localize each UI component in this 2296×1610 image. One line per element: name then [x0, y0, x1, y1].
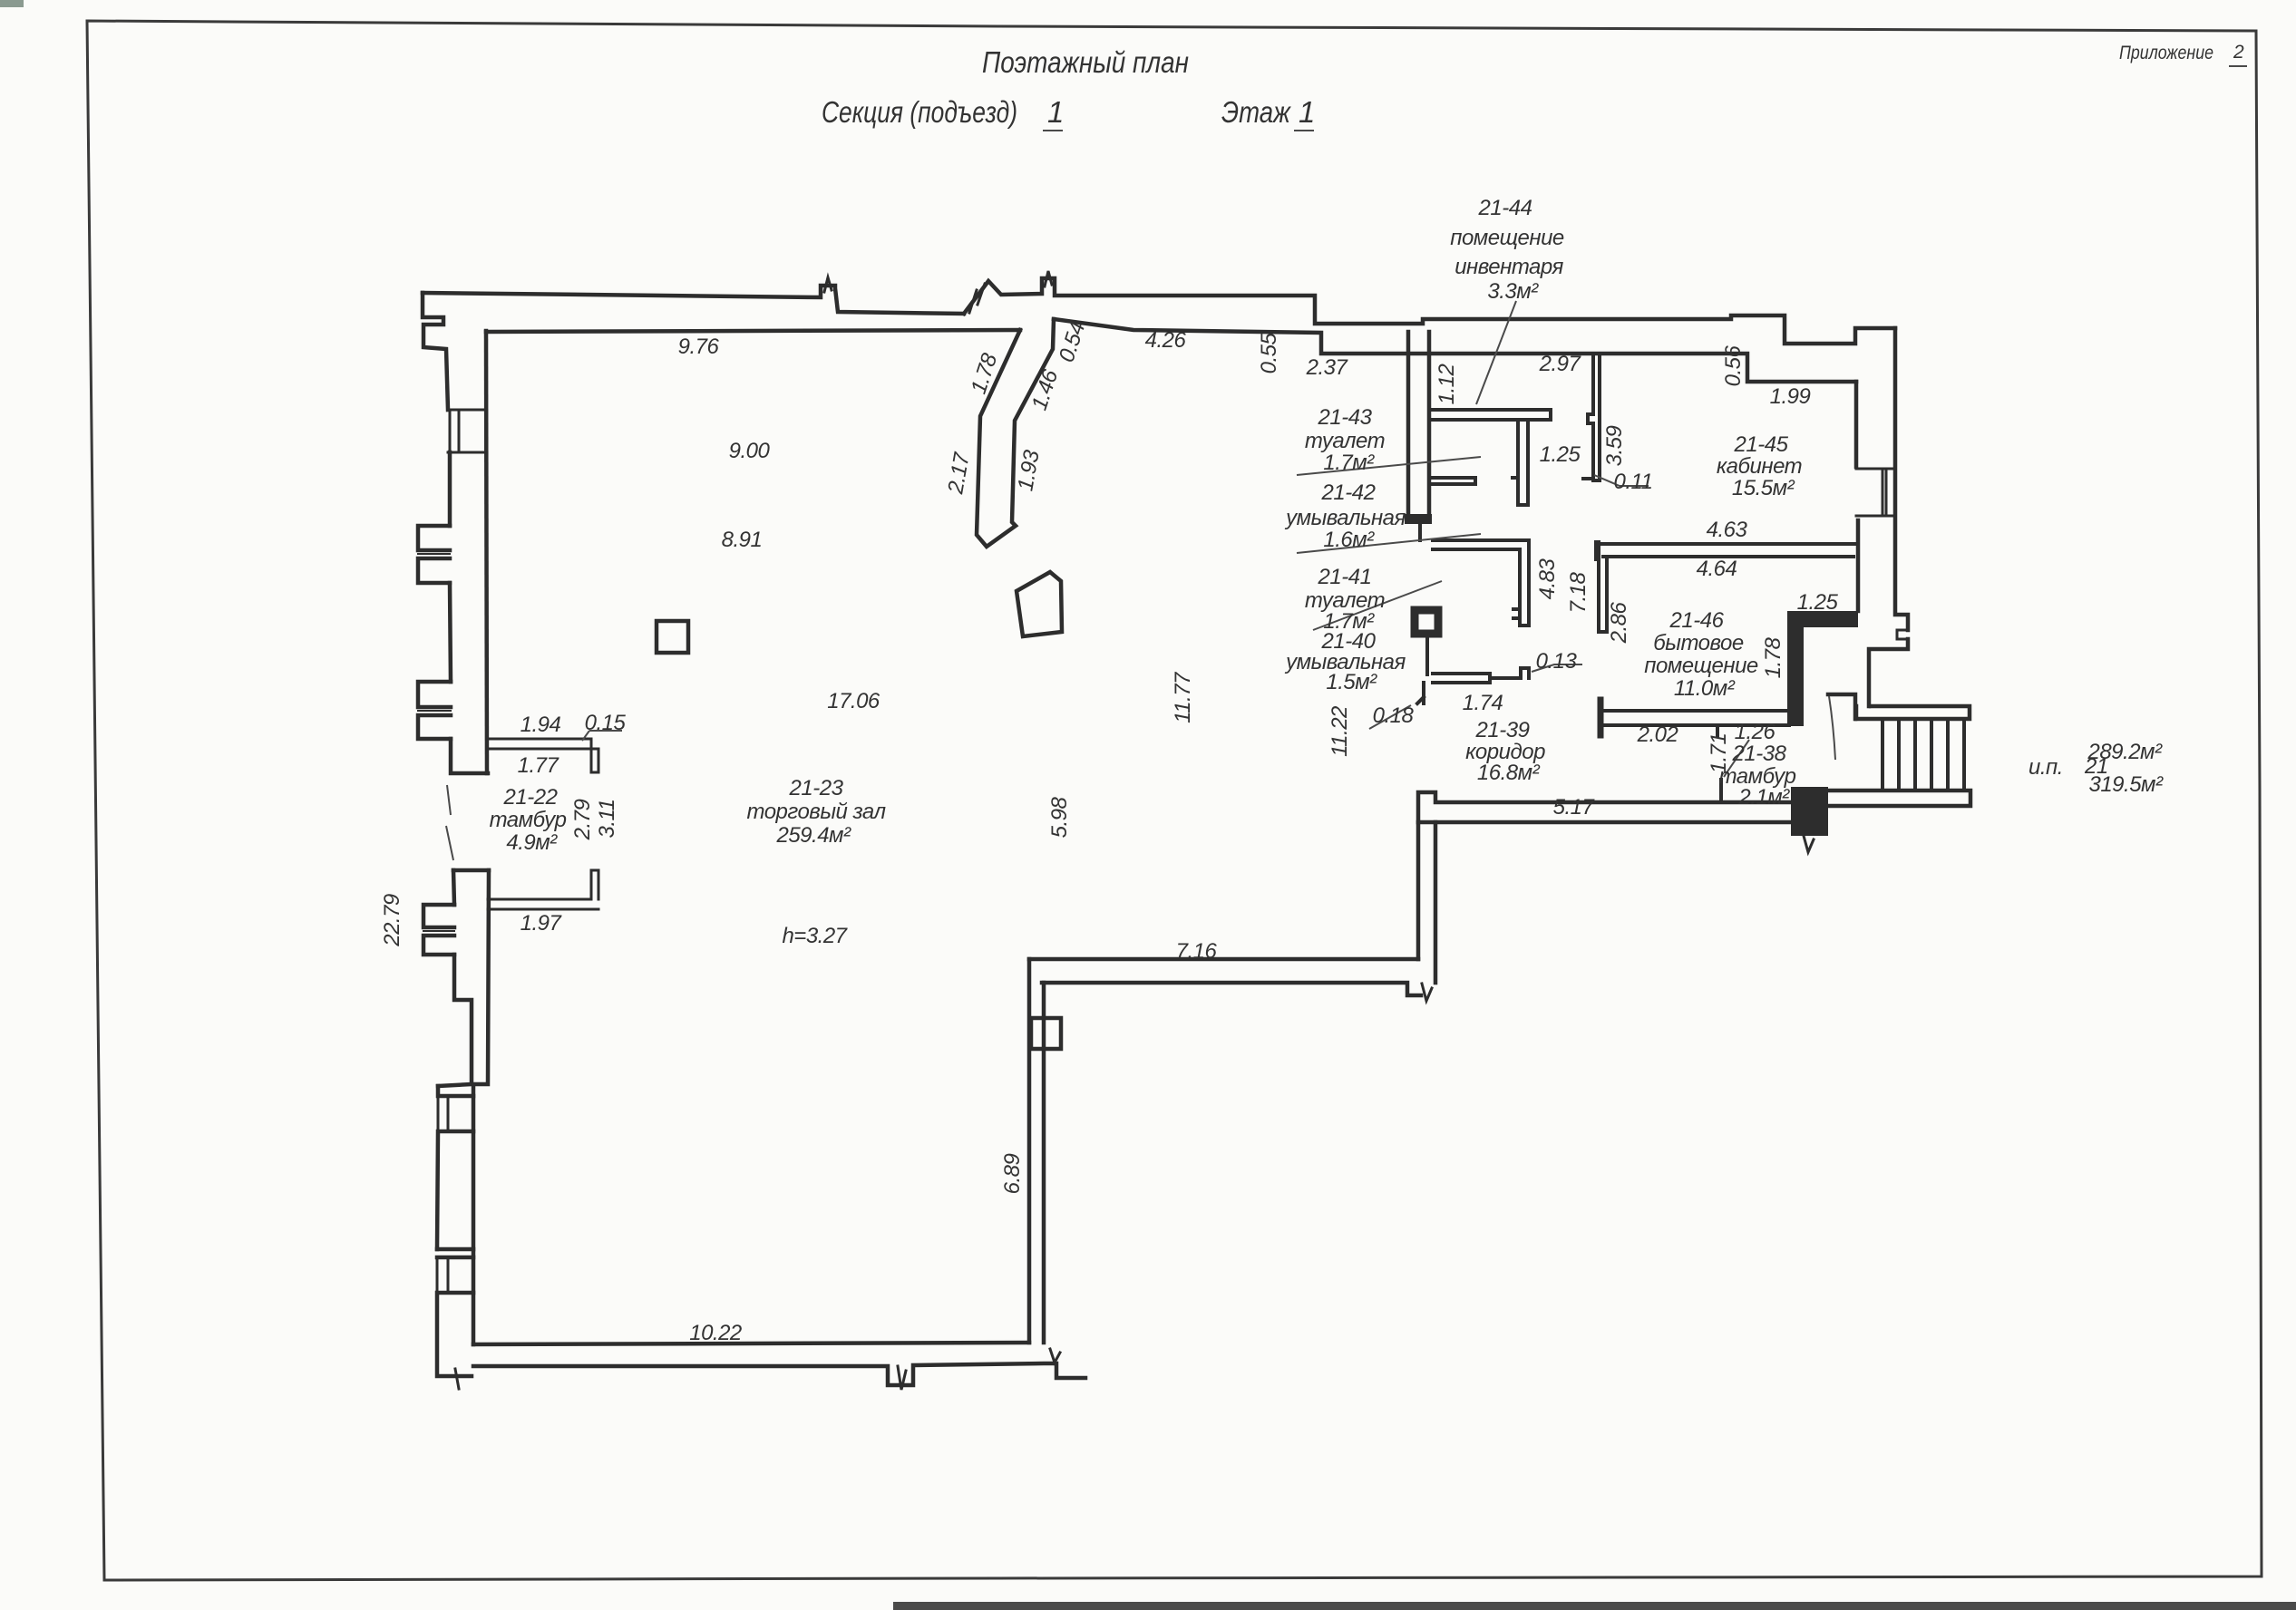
svg-text:4.9м²: 4.9м² [506, 830, 558, 855]
svg-text:1.94: 1.94 [520, 713, 561, 737]
svg-text:21-23: 21-23 [789, 776, 844, 800]
svg-text:1.74: 1.74 [1463, 691, 1503, 715]
svg-text:2.37: 2.37 [1306, 355, 1349, 380]
svg-text:10.22: 10.22 [689, 1321, 742, 1345]
svg-text:5.17: 5.17 [1553, 795, 1596, 820]
svg-text:7.16: 7.16 [1176, 939, 1218, 964]
svg-text:11.22: 11.22 [1328, 706, 1352, 757]
svg-text:3.3м²: 3.3м² [1487, 279, 1539, 304]
svg-text:h=3.27: h=3.27 [782, 924, 848, 948]
svg-text:1: 1 [1299, 95, 1315, 129]
svg-text:0.55: 0.55 [1257, 332, 1281, 373]
svg-text:помещение: помещение [1644, 654, 1758, 678]
svg-text:21-46: 21-46 [1669, 608, 1725, 633]
svg-text:и.п.: и.п. [2028, 755, 2063, 780]
svg-text:21-43: 21-43 [1318, 405, 1373, 430]
svg-text:2.86: 2.86 [1607, 601, 1631, 644]
svg-text:1.78: 1.78 [1761, 636, 1785, 678]
svg-text:тамбур: тамбур [490, 808, 567, 832]
svg-text:15.5м²: 15.5м² [1732, 476, 1795, 500]
svg-text:8.91: 8.91 [722, 528, 763, 552]
svg-text:0.11: 0.11 [1614, 470, 1653, 494]
svg-text:22.79: 22.79 [380, 894, 404, 947]
svg-text:3.11: 3.11 [595, 800, 619, 839]
svg-text:21-44: 21-44 [1478, 196, 1532, 220]
svg-text:Поэтажный план: Поэтажный план [982, 45, 1189, 79]
svg-text:289.2м²: 289.2м² [2087, 740, 2163, 764]
svg-text:9.76: 9.76 [678, 335, 720, 359]
svg-text:1.99: 1.99 [1770, 384, 1811, 409]
svg-text:21-41: 21-41 [1318, 565, 1372, 589]
svg-text:1.97: 1.97 [520, 911, 563, 936]
svg-text:туалет: туалет [1305, 429, 1385, 453]
svg-text:умывальная: умывальная [1284, 506, 1406, 530]
svg-text:5.98: 5.98 [1047, 796, 1072, 838]
svg-text:259.4м²: 259.4м² [775, 823, 851, 848]
svg-text:0.13: 0.13 [1536, 649, 1578, 674]
svg-text:4.63: 4.63 [1707, 518, 1748, 542]
svg-text:1.26: 1.26 [1735, 720, 1776, 744]
svg-text:1: 1 [1047, 95, 1064, 129]
svg-text:17.06: 17.06 [827, 689, 880, 713]
svg-text:16.8м²: 16.8м² [1477, 761, 1541, 785]
svg-text:0.15: 0.15 [585, 711, 627, 735]
svg-text:1.7м²: 1.7м² [1323, 451, 1375, 475]
svg-text:бытовое: бытовое [1653, 631, 1744, 655]
svg-text:21-22: 21-22 [503, 785, 558, 810]
svg-text:7.18: 7.18 [1566, 571, 1591, 613]
svg-text:9.00: 9.00 [729, 439, 771, 463]
svg-text:21-38: 21-38 [1732, 742, 1787, 766]
svg-text:2.1м²: 2.1м² [1737, 785, 1790, 810]
svg-text:1.77: 1.77 [518, 753, 560, 778]
svg-text:11.77: 11.77 [1171, 671, 1195, 723]
svg-text:инвентаря: инвентаря [1454, 255, 1563, 279]
svg-text:11.0м²: 11.0м² [1674, 676, 1736, 701]
svg-text:319.5м²: 319.5м² [2088, 772, 2164, 797]
svg-text:торговый зал: торговый зал [746, 800, 886, 824]
svg-text:Этаж: Этаж [1221, 95, 1291, 129]
svg-text:2.02: 2.02 [1637, 723, 1678, 747]
svg-text:кабинет: кабинет [1717, 454, 1802, 479]
svg-text:3.59: 3.59 [1602, 425, 1627, 466]
svg-text:2.79: 2.79 [570, 799, 595, 840]
svg-text:4.64: 4.64 [1697, 557, 1737, 581]
svg-text:Секция (подъезд): Секция (подъезд) [822, 95, 1017, 129]
svg-text:1.6м²: 1.6м² [1323, 528, 1375, 552]
svg-text:1.12: 1.12 [1435, 364, 1459, 404]
svg-text:21-42: 21-42 [1321, 480, 1376, 505]
svg-text:0.56: 0.56 [1721, 344, 1746, 386]
svg-text:1.25: 1.25 [1797, 590, 1839, 615]
svg-text:21-39: 21-39 [1475, 718, 1530, 742]
svg-text:2: 2 [2233, 42, 2244, 63]
svg-text:Приложение: Приложение [2119, 43, 2213, 63]
svg-text:4.83: 4.83 [1535, 558, 1560, 599]
svg-text:помещение: помещение [1450, 226, 1564, 250]
svg-text:0.18: 0.18 [1373, 703, 1415, 728]
svg-text:21-45: 21-45 [1734, 432, 1789, 457]
svg-text:1.25: 1.25 [1540, 442, 1581, 467]
svg-text:6.89: 6.89 [1000, 1153, 1025, 1194]
svg-text:2.97: 2.97 [1539, 352, 1582, 376]
svg-text:1.5м²: 1.5м² [1326, 670, 1377, 694]
svg-text:4.26: 4.26 [1145, 328, 1187, 353]
